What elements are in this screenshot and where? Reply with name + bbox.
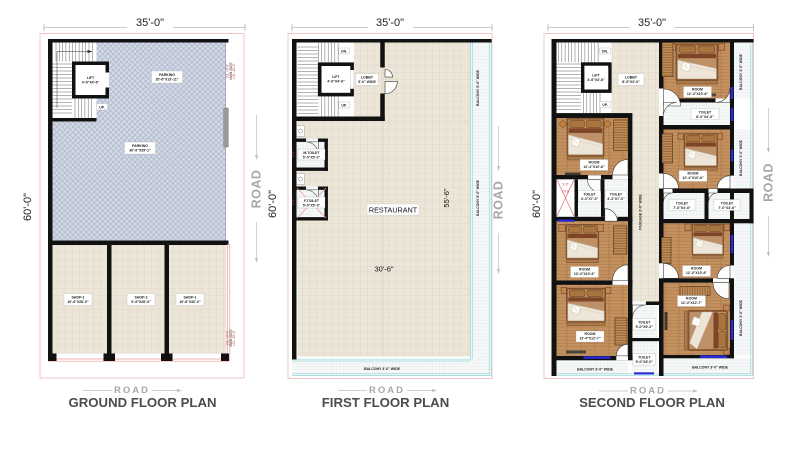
svg-text:TOILET: TOILET xyxy=(610,192,623,196)
svg-text:30'-6": 30'-6" xyxy=(374,265,393,274)
svg-text:SHOP-1: SHOP-1 xyxy=(71,296,84,300)
svg-text:BALCONY 3'-0" WIDE: BALCONY 3'-0" WIDE xyxy=(364,367,401,371)
svg-text:ROOM: ROOM xyxy=(688,171,699,175)
svg-text:LOBBY: LOBBY xyxy=(361,76,374,80)
svg-text:8'-5"X3'-0": 8'-5"X3'-0" xyxy=(622,80,640,84)
svg-text:BALCONY 3'-0" WIDE: BALCONY 3'-0" WIDE xyxy=(739,139,743,176)
svg-text:ROAD: ROAD xyxy=(250,170,264,209)
svg-text:DN.: DN. xyxy=(341,50,347,54)
svg-text:35'-0": 35'-0" xyxy=(376,17,404,29)
svg-text:10'-8"X30'-0": 10'-8"X30'-0" xyxy=(179,300,201,304)
svg-text:5'-0" WIDE: 5'-0" WIDE xyxy=(358,80,376,84)
svg-text:OT.S: OT.S xyxy=(562,190,569,194)
svg-text:12'-4"X10'-6": 12'-4"X10'-6" xyxy=(583,165,605,169)
svg-text:UP.: UP. xyxy=(99,105,105,109)
svg-text:5'-0": 5'-0" xyxy=(292,199,296,205)
svg-text:TOILET: TOILET xyxy=(583,192,596,196)
svg-text:ROAD: ROAD xyxy=(762,163,776,202)
svg-text:TOILET: TOILET xyxy=(699,110,712,114)
svg-text:7'-0"X4'-6": 7'-0"X4'-6" xyxy=(718,206,736,210)
svg-text:4'-6"X4'-6": 4'-6"X4'-6" xyxy=(327,80,345,84)
svg-text:BALCONY 5'-0" WIDE: BALCONY 5'-0" WIDE xyxy=(476,179,480,216)
svg-text:5'-0"X6'-0": 5'-0"X6'-0" xyxy=(636,325,654,329)
svg-text:4'-6"X4'-6": 4'-6"X4'-6" xyxy=(587,78,605,82)
svg-text:ROOM: ROOM xyxy=(585,332,596,336)
svg-text:BALCONY 3'-0" WIDE: BALCONY 3'-0" WIDE xyxy=(739,53,743,90)
svg-text:9'-9"X28'-0": 9'-9"X28'-0" xyxy=(131,300,151,304)
svg-text:12'-4"X10'-6": 12'-4"X10'-6" xyxy=(687,92,709,96)
svg-text:13'-4"X10'-6": 13'-4"X10'-6" xyxy=(574,272,596,276)
svg-text:BALCONY 3'-0" WIDE: BALCONY 3'-0" WIDE xyxy=(692,366,729,370)
svg-text:RESTAURANT: RESTAURANT xyxy=(369,205,418,214)
svg-text:12'-4"X12'-7": 12'-4"X12'-7" xyxy=(681,301,703,305)
svg-text:4'-3"X7'-0": 4'-3"X7'-0" xyxy=(607,197,625,201)
svg-text:F.TOILET: F.TOILET xyxy=(304,199,320,203)
svg-text:GROUND FLOOR PLAN: GROUND FLOOR PLAN xyxy=(69,395,217,410)
svg-text:ROOM: ROOM xyxy=(579,267,590,271)
svg-text:55'-6": 55'-6" xyxy=(442,188,451,207)
svg-text:BALCONY 3'-0" WIDE: BALCONY 3'-0" WIDE xyxy=(739,299,743,336)
svg-text:60'-0": 60'-0" xyxy=(267,190,279,218)
svg-text:PARKING: PARKING xyxy=(132,144,148,148)
svg-text:60'-0": 60'-0" xyxy=(22,193,34,221)
svg-text:35'-0": 35'-0" xyxy=(136,17,164,29)
svg-text:LOBBY: LOBBY xyxy=(625,76,638,80)
svg-text:TOILET: TOILET xyxy=(638,320,651,324)
svg-text:ROOM: ROOM xyxy=(589,160,600,164)
svg-text:12'-4"X10'-6": 12'-4"X10'-6" xyxy=(686,271,708,275)
svg-text:PASSAGE 3'-6" WIDE: PASSAGE 3'-6" WIDE xyxy=(639,194,643,230)
svg-text:20'-6"X13'-11": 20'-6"X13'-11" xyxy=(155,78,178,82)
svg-text:UP.: UP. xyxy=(341,104,347,108)
svg-text:SHOP-2: SHOP-2 xyxy=(134,296,147,300)
svg-text:SECOND FLOOR PLAN: SECOND FLOOR PLAN xyxy=(579,395,725,410)
svg-text:35'-0": 35'-0" xyxy=(638,17,666,29)
svg-text:12'-4"X10'-6": 12'-4"X10'-6" xyxy=(682,176,704,180)
svg-text:DN.: DN. xyxy=(602,50,608,54)
svg-text:PARKING: PARKING xyxy=(159,73,175,77)
svg-text:LVL -10'-0": LVL -10'-0" xyxy=(232,63,236,78)
svg-text:TOILET: TOILET xyxy=(721,201,734,205)
svg-text:ROOM: ROOM xyxy=(691,266,702,270)
svg-text:4'-6"X4'-6": 4'-6"X4'-6" xyxy=(82,81,100,85)
svg-text:3'-0": 3'-0" xyxy=(562,183,568,187)
svg-text:SHOP-1: SHOP-1 xyxy=(183,296,196,300)
svg-text:8'-0"X4'-6": 8'-0"X4'-6" xyxy=(696,115,714,119)
svg-text:LIFT: LIFT xyxy=(87,76,95,80)
svg-text:ROAD: ROAD xyxy=(492,181,506,220)
svg-text:BALCONY 5'-0" WIDE: BALCONY 5'-0" WIDE xyxy=(476,69,480,106)
svg-text:LVL -10'-0": LVL -10'-0" xyxy=(232,330,236,345)
svg-text:30'-6"X35'-1": 30'-6"X35'-1" xyxy=(129,149,151,153)
svg-text:LIFT: LIFT xyxy=(592,74,600,78)
svg-text:5'-0"X6'-0": 5'-0"X6'-0" xyxy=(636,360,654,364)
svg-text:ROOM: ROOM xyxy=(692,87,703,91)
svg-text:7'-0"X4'-6": 7'-0"X4'-6" xyxy=(673,206,691,210)
svg-text:5'-0"X5'-3": 5'-0"X5'-3" xyxy=(303,156,321,160)
svg-text:5'-0": 5'-0" xyxy=(292,151,296,157)
svg-text:FIRST FLOOR PLAN: FIRST FLOOR PLAN xyxy=(322,395,449,410)
svg-text:M.TOILET: M.TOILET xyxy=(303,151,320,155)
svg-text:13'-4"X12'-7": 13'-4"X12'-7" xyxy=(579,337,601,341)
svg-text:BALCONY 3'-0" WIDE: BALCONY 3'-0" WIDE xyxy=(577,368,614,372)
svg-text:5'-0"X5'-3": 5'-0"X5'-3" xyxy=(303,204,321,208)
svg-text:UP.: UP. xyxy=(602,103,608,107)
svg-text:TOILET: TOILET xyxy=(676,201,689,205)
svg-text:LIFT: LIFT xyxy=(332,75,340,79)
svg-text:4'-3"X7'-0": 4'-3"X7'-0" xyxy=(581,197,599,201)
svg-text:60'-0": 60'-0" xyxy=(531,190,543,218)
svg-text:TOILET: TOILET xyxy=(638,355,651,359)
svg-text:10'-6"X28'-0": 10'-6"X28'-0" xyxy=(67,300,89,304)
svg-text:ROOM: ROOM xyxy=(686,296,697,300)
